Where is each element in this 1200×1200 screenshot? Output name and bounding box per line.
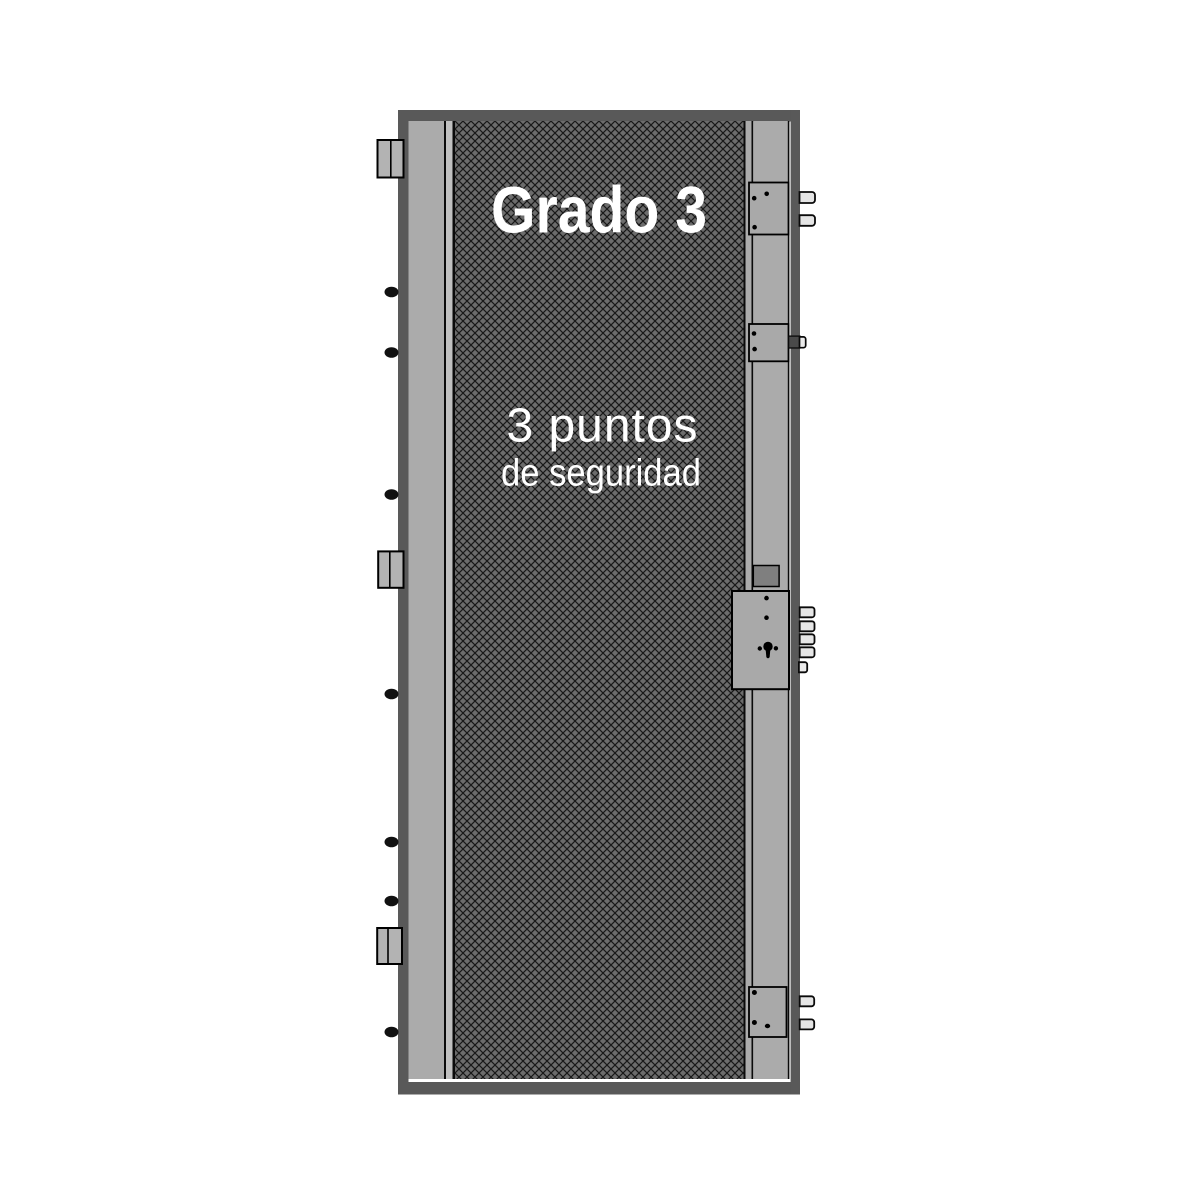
- svg-text:de seguridad: de seguridad: [501, 453, 701, 495]
- svg-text:3 puntos: 3 puntos: [507, 400, 698, 453]
- svg-text:Grado 3: Grado 3: [491, 173, 707, 247]
